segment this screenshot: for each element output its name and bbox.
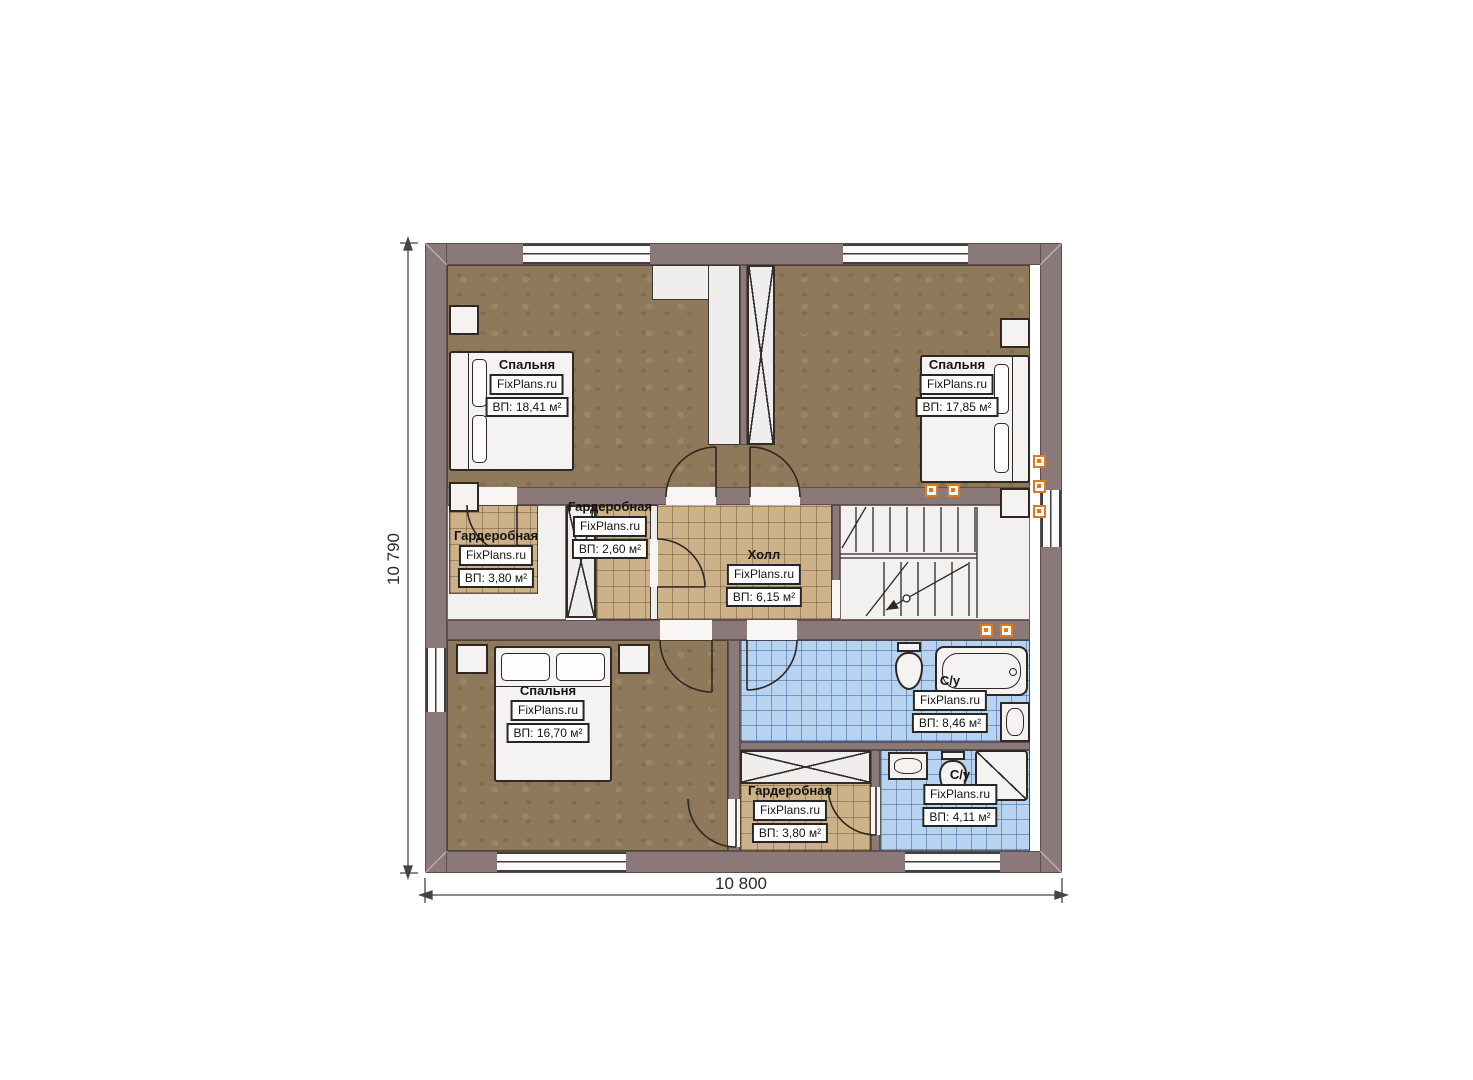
wall-outer-right — [1040, 243, 1062, 873]
room-label-wardrobe-left: Гардеробная FixPlans.ru ВП: 3,80 м² — [454, 529, 538, 588]
ceiling-light-icon — [980, 624, 993, 637]
wall-outer-left — [425, 243, 447, 873]
nightstand — [456, 644, 488, 674]
room-name: С/у — [940, 674, 960, 688]
door-opening — [747, 620, 797, 640]
area-label: ВП: 2,60 м² — [572, 539, 648, 559]
room-label-wardrobe-bottom: Гардеробная FixPlans.ru ВП: 3,80 м² — [748, 784, 832, 843]
window — [523, 244, 650, 264]
pillow — [501, 653, 550, 681]
pillow — [472, 415, 487, 463]
washbasin — [1000, 702, 1030, 742]
nightstand — [1000, 318, 1030, 348]
dimension-arrow — [404, 238, 412, 250]
area-label: ВП: 8,46 м² — [912, 713, 988, 733]
brand-label: FixPlans.ru — [459, 545, 533, 565]
window — [426, 648, 446, 712]
room-name: С/у — [950, 768, 970, 782]
bathtub-drain — [1009, 668, 1017, 676]
washbasin-bowl — [894, 758, 922, 774]
nightstand — [618, 644, 650, 674]
room-name: Спальня — [499, 358, 555, 372]
brand-label: FixPlans.ru — [490, 374, 564, 394]
window — [497, 852, 626, 872]
area-label: ВП: 6,15 м² — [726, 587, 802, 607]
ceiling-light-icon — [1033, 455, 1046, 468]
door-opening — [728, 799, 740, 847]
toilet-tank — [897, 642, 921, 652]
area-label: ВП: 3,80 м² — [458, 568, 534, 588]
ceiling-light-icon — [925, 484, 938, 497]
door-opening — [750, 487, 800, 505]
brand-label: FixPlans.ru — [920, 374, 994, 394]
brand-label: FixPlans.ru — [913, 690, 987, 710]
wall-b-horizontal — [447, 620, 1030, 640]
dimension-arrow — [420, 891, 432, 899]
wall-a-horizontal — [447, 487, 1030, 505]
dimension-arrow — [404, 866, 412, 878]
dimension-left-label: 10 790 — [384, 533, 404, 585]
room-label-wardrobe-middle: Гардеробная FixPlans.ru ВП: 2,60 м² — [568, 500, 652, 559]
pillow — [994, 423, 1009, 473]
room-label-bathroom-big: С/у FixPlans.ru ВП: 8,46 м² — [912, 674, 988, 733]
nightstand — [1000, 488, 1030, 518]
nightstand — [449, 482, 479, 512]
window — [843, 244, 968, 264]
door-opening — [871, 787, 880, 835]
brand-label: FixPlans.ru — [753, 800, 827, 820]
pillow — [556, 653, 605, 681]
room-name: Гардеробная — [454, 529, 538, 543]
room-name: Гардеробная — [748, 784, 832, 798]
partition-top-vertical — [708, 265, 740, 445]
area-label: ВП: 17,85 м² — [916, 397, 999, 417]
door-opening — [832, 580, 840, 618]
headboard — [468, 353, 469, 469]
room-label-hall: Холл FixPlans.ru ВП: 6,15 м² — [726, 548, 802, 607]
wardrobe-cabinet-icon — [740, 750, 871, 784]
room-label-bedroom-1: Спальня FixPlans.ru ВП: 18,41 м² — [486, 358, 569, 417]
vent-shaft-icon — [747, 265, 775, 445]
wall-bedrooms-divider — [740, 265, 747, 445]
staircase-floor — [840, 505, 1030, 620]
door-opening — [666, 487, 716, 505]
window — [1041, 490, 1061, 547]
area-label: ВП: 16,70 м² — [507, 723, 590, 743]
dimension-arrow — [1055, 891, 1067, 899]
room-label-bedroom-3: Спальня FixPlans.ru ВП: 16,70 м² — [507, 684, 590, 743]
area-label: ВП: 4,11 м² — [922, 807, 997, 827]
brand-label: FixPlans.ru — [923, 784, 997, 804]
ceiling-light-icon — [1000, 624, 1013, 637]
dimension-bottom-label: 10 800 — [715, 874, 767, 894]
partition-top-stub — [652, 265, 712, 300]
room-label-bathroom-small: С/у FixPlans.ru ВП: 4,11 м² — [922, 768, 997, 827]
door-opening — [660, 620, 712, 640]
room-name: Гардеробная — [568, 500, 652, 514]
headboard — [1012, 357, 1013, 481]
brand-label: FixPlans.ru — [727, 564, 801, 584]
nightstand — [449, 305, 479, 335]
area-label: ВП: 18,41 м² — [486, 397, 569, 417]
room-label-bedroom-2: Спальня FixPlans.ru ВП: 17,85 м² — [916, 358, 999, 417]
ceiling-light-icon — [947, 484, 960, 497]
brand-label: FixPlans.ru — [511, 700, 585, 720]
ceiling-light-icon — [1033, 480, 1046, 493]
floor-plan: Спальня FixPlans.ru ВП: 18,41 м² Спальня… — [0, 0, 1473, 1080]
room-name: Спальня — [520, 684, 576, 698]
wall-bathrooms-divider — [740, 742, 1030, 750]
area-label: ВП: 3,80 м² — [752, 823, 828, 843]
toilet-tank — [941, 751, 965, 760]
washbasin-bowl — [1006, 708, 1024, 736]
ceiling-light-icon — [1033, 505, 1046, 518]
brand-label: FixPlans.ru — [573, 516, 647, 536]
window — [905, 852, 1000, 872]
room-name: Холл — [748, 548, 781, 562]
room-name: Спальня — [929, 358, 985, 372]
